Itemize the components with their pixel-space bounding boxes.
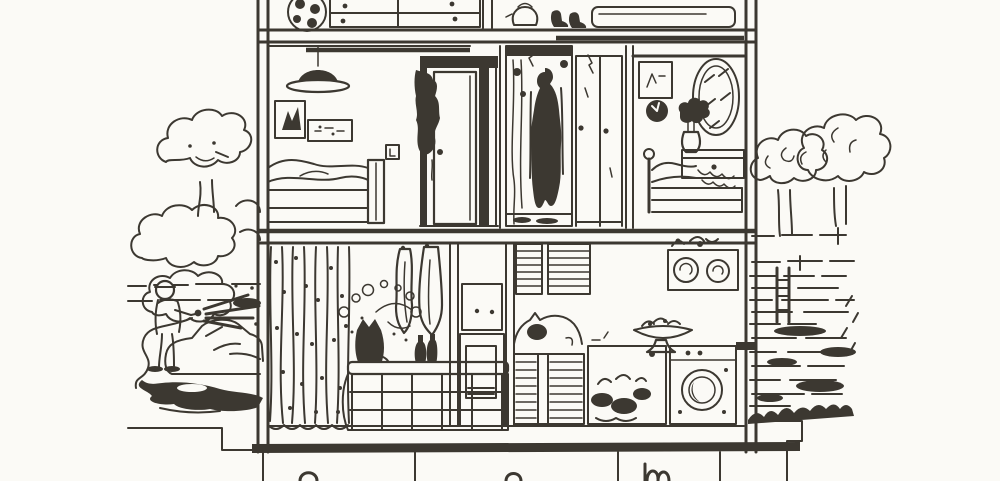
chest-of-drawers [330,0,480,27]
scanned-illustration-page [0,0,1000,481]
bedroom-right [626,46,744,228]
bedroom-left [268,46,533,226]
outside-right [748,114,890,424]
dresser [682,150,744,178]
picture-frame-tall [275,101,305,138]
attic-stud [483,0,492,28]
open-door [415,56,499,226]
kettle [506,4,537,26]
tree-right-2 [798,114,891,226]
washing-machine [670,342,756,424]
light-switch [386,145,399,159]
framed-picture [639,62,672,98]
cat-on-tub [355,319,389,368]
vase-of-flowers [679,98,710,152]
pot-shelf [668,237,738,290]
cupboard-and-door [450,244,504,426]
wall-clock [646,100,668,122]
small-tree [157,110,251,216]
puddle [139,377,263,412]
fence-rails [752,228,854,270]
sleeping-cat [514,313,582,345]
basement-cropped-shapes [300,464,669,481]
wall-pipe [736,342,756,350]
polka-dot-curtains [268,247,352,429]
house-cross-section-illustration [0,0,1000,481]
picture-frame-wide [308,120,352,141]
tree-right-1 [751,130,827,236]
shower-room [500,46,622,228]
oval-mirror [693,59,739,135]
sliding-panels [576,55,622,226]
kitchen [514,237,756,424]
storage-chest [592,7,735,27]
garden-hose [136,318,192,388]
ground-scribbles [748,276,858,424]
shampoo-bottles [415,334,438,363]
person-washing-car [147,281,201,372]
slatted-cabinet [514,354,584,424]
outside-left [128,110,263,450]
tiled-bathtub [343,362,508,430]
football [288,0,326,31]
boots [551,10,586,28]
left-exterior-wall [258,0,268,452]
doorstep [128,428,256,450]
house-shell [252,0,802,481]
pendant-lamp [287,46,349,92]
bathroom [268,244,514,430]
double-bed [268,160,384,223]
attic [288,0,735,31]
foundation-band [252,442,800,453]
slatted-blinds [516,244,590,294]
sink-unit [588,332,666,424]
right-exterior-wall [746,0,756,452]
hanging-towels [396,244,442,335]
